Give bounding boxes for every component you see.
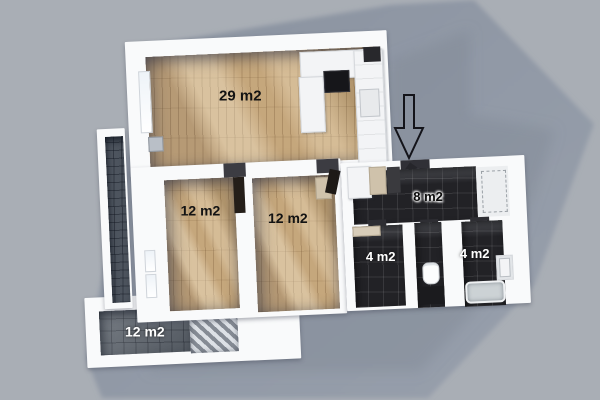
bedroom-left-door-leaf bbox=[233, 177, 246, 213]
fridge bbox=[299, 76, 327, 133]
hallway-cabinet bbox=[369, 166, 387, 195]
bedroom-left-floor bbox=[164, 177, 240, 311]
radiator bbox=[148, 136, 164, 152]
bedroom-left-window bbox=[144, 250, 156, 272]
bathroom-left-floor bbox=[352, 225, 406, 308]
balcony-floor bbox=[105, 136, 131, 303]
hallway-bathrooms-block bbox=[340, 155, 531, 311]
wc-dark-mat bbox=[419, 286, 445, 305]
balcony-block bbox=[97, 128, 133, 309]
bedroom-left-door-opening bbox=[223, 163, 246, 178]
washing-machine bbox=[496, 255, 514, 281]
apartment-building: 29 m2 12 m2 12 m2 8 m2 4 m2 4 m2 12 m2 bbox=[84, 9, 559, 380]
floorplan-render: 29 m2 12 m2 12 m2 8 m2 4 m2 4 m2 12 m2 bbox=[0, 0, 600, 400]
cooktop bbox=[323, 70, 350, 93]
label-bedroom-left: 12 m2 bbox=[181, 203, 221, 219]
label-living-kitchen: 29 m2 bbox=[219, 87, 262, 104]
bathtub bbox=[465, 280, 506, 304]
bedrooms-block bbox=[130, 158, 347, 322]
label-bedroom-right: 12 m2 bbox=[268, 210, 308, 226]
bathroom-left-shelf bbox=[352, 226, 380, 237]
toilet bbox=[422, 262, 440, 285]
label-bathroom-left: 4 m2 bbox=[366, 249, 396, 264]
planned-wardrobe-outline bbox=[481, 170, 508, 213]
kitchen-backsplash bbox=[363, 46, 381, 62]
label-bathroom-right: 4 m2 bbox=[460, 246, 490, 261]
label-terrace: 12 m2 bbox=[125, 323, 165, 339]
hallway-shelf bbox=[387, 167, 401, 194]
kitchen-sink bbox=[359, 89, 380, 118]
label-hallway: 8 m2 bbox=[413, 189, 443, 204]
bedroom-left-window-2 bbox=[145, 274, 157, 298]
